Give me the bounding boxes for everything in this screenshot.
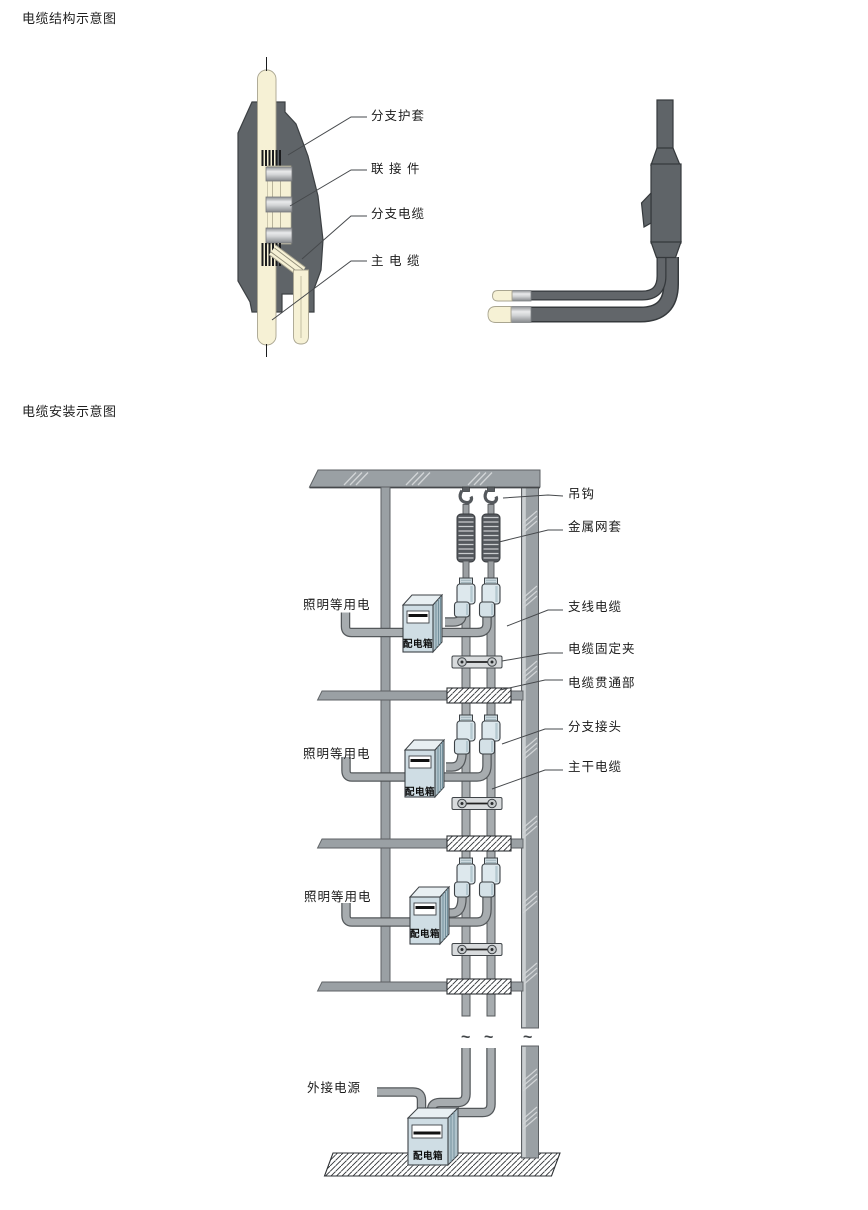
thin-cable-outline (531, 256, 662, 296)
label-hook: 吊钩 (568, 487, 595, 502)
cable-diagram-page: 电缆结构示意图 分支护套 联 接 件 分支电缆 主 电 缆 电缆安装示意图 吊钩… (0, 0, 868, 1210)
branch-joint-1b (480, 578, 501, 617)
break-mark-3: ~ (523, 1030, 532, 1046)
label-branch-joint: 分支接头 (568, 720, 622, 735)
label-main-trunk-cable: 主干电缆 (568, 760, 622, 775)
diagram-canvas (0, 0, 868, 1210)
thin-stripped-end (493, 291, 513, 302)
distribution-box-main-label: 配电箱 (409, 1148, 447, 1162)
thin-cable (531, 256, 662, 296)
connector-band-2 (266, 197, 292, 212)
label-external-power: 外接电源 (307, 1081, 361, 1096)
cable-penetration-2 (447, 836, 511, 851)
label-branch-cable: 分支电缆 (371, 207, 425, 222)
label-cable-fixing-clamp: 电缆固定夹 (568, 642, 636, 657)
connector-band-1 (266, 167, 292, 181)
thick-cable-outline (531, 257, 671, 315)
label-main-cable: 主 电 缆 (371, 254, 420, 269)
distribution-box-1-label: 配电箱 (402, 636, 434, 650)
installation-figure (310, 470, 564, 1176)
break-mark-2: ~ (484, 1030, 493, 1046)
label-cable-penetration: 电缆贯通部 (568, 676, 636, 691)
connector-band-3 (266, 228, 292, 243)
cable-top (657, 100, 673, 149)
distribution-box-3-label: 配电箱 (409, 926, 441, 940)
branch-joint-2a (455, 715, 476, 754)
cable-penetration-3 (447, 979, 511, 994)
joint-taper-bottom (651, 242, 681, 258)
structure-section-title: 电缆结构示意图 (22, 8, 117, 27)
joint-sleeve (651, 164, 681, 243)
cable-clamp-1 (452, 656, 502, 668)
finished-cable-figure (488, 100, 681, 323)
label-lighting-load-3: 照明等用电 (304, 890, 372, 905)
label-lighting-load-2: 照明等用电 (303, 747, 371, 762)
cable-clamp-3 (452, 944, 502, 956)
thin-ferrule (512, 291, 531, 302)
thick-ferrule (511, 307, 531, 323)
cable-structure-figure (238, 57, 367, 357)
branch-joint-3a (455, 858, 476, 897)
wall-column-upper (522, 487, 539, 1028)
ceiling-beam (310, 470, 541, 488)
cable-clamp-2 (452, 798, 502, 810)
cable-penetration-1 (447, 688, 511, 703)
wall-column-lower (522, 1046, 539, 1158)
riser-pipe (381, 487, 390, 991)
joint-side-tab (642, 193, 652, 227)
label-lighting-load-1: 照明等用电 (303, 598, 371, 613)
installation-section-title: 电缆安装示意图 (22, 401, 117, 420)
distribution-box-2-label: 配电箱 (404, 784, 436, 798)
branch-joint-3b (480, 858, 501, 897)
label-connector: 联 接 件 (371, 162, 420, 177)
thick-stripped-end (488, 307, 511, 323)
branch-joint-2b (480, 715, 501, 754)
hook-and-mesh-sleeve-1 (457, 487, 475, 578)
break-mark-1: ~ (461, 1030, 470, 1046)
branch-joint-1a (455, 578, 476, 617)
label-branch-line-cable: 支线电缆 (568, 600, 622, 615)
hook-and-mesh-sleeve-2 (482, 487, 500, 578)
label-branch-sheath: 分支护套 (371, 109, 425, 124)
label-metal-mesh-sleeve: 金属网套 (568, 520, 622, 535)
joint-taper-top (651, 148, 680, 165)
